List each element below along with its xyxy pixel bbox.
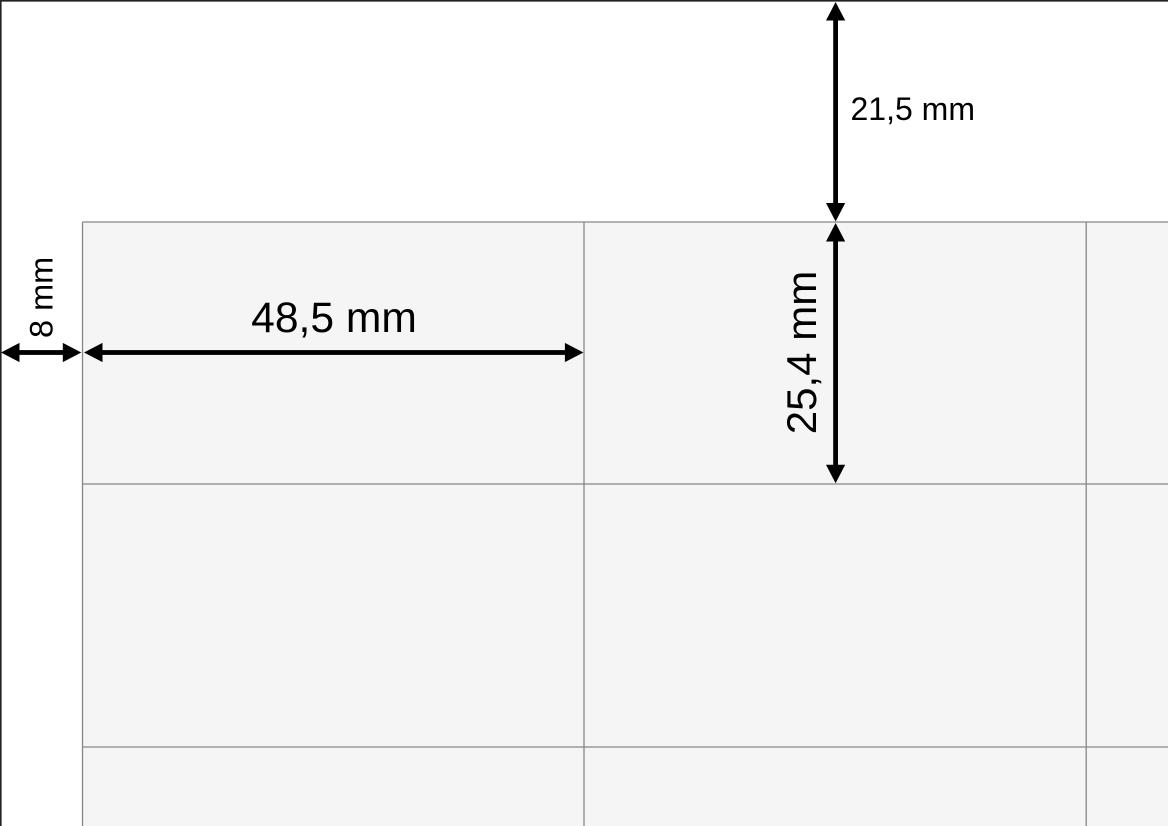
svg-text:48,5 mm: 48,5 mm xyxy=(251,294,417,342)
svg-text:21,5 mm: 21,5 mm xyxy=(851,91,975,127)
svg-text:25,4 mm: 25,4 mm xyxy=(778,271,825,434)
svg-text:8 mm: 8 mm xyxy=(24,257,60,338)
